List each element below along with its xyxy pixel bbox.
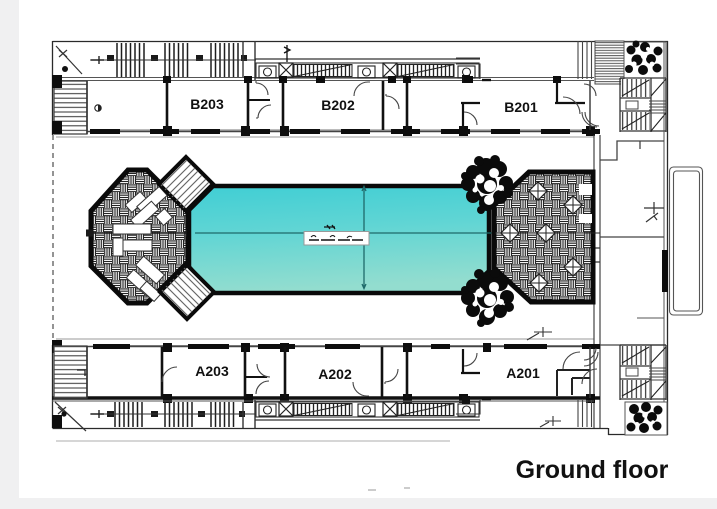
svg-text:A203: A203	[195, 363, 229, 379]
svg-text:A202: A202	[318, 366, 352, 382]
svg-text:B202: B202	[321, 97, 355, 113]
svg-text:B203: B203	[190, 96, 224, 112]
svg-text:Ground floor: Ground floor	[516, 456, 669, 484]
svg-text:A201: A201	[506, 365, 540, 381]
svg-text:B201: B201	[504, 99, 538, 115]
